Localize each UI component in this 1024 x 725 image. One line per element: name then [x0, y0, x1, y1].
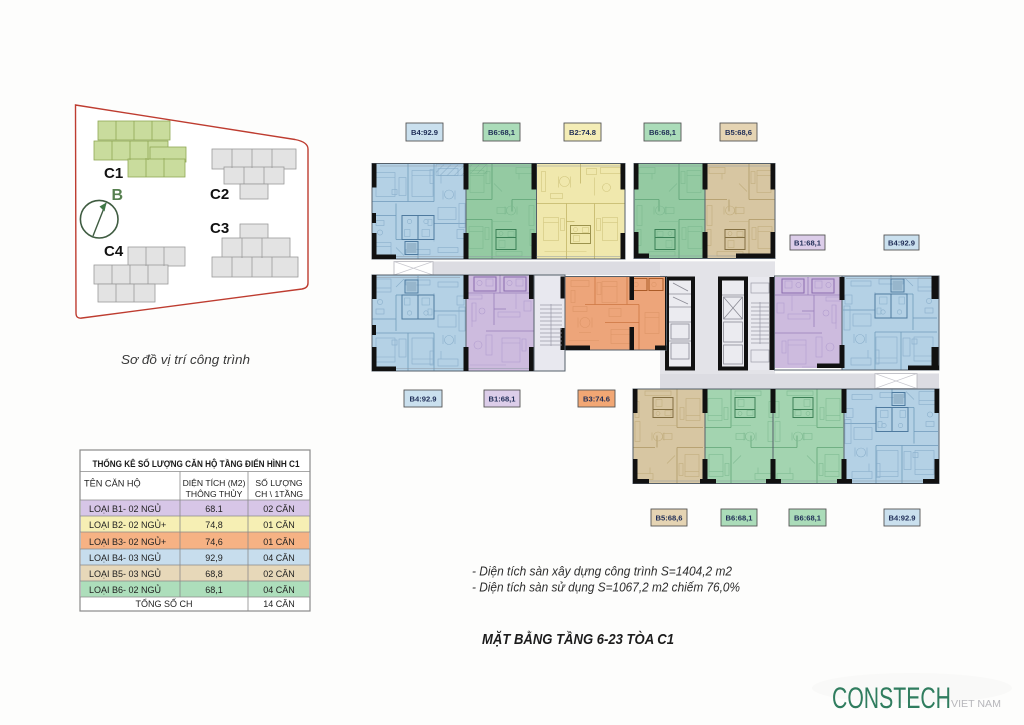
svg-text:TÊN CĂN HỘ: TÊN CĂN HỘ — [84, 478, 141, 489]
svg-text:B1:68,1: B1:68,1 — [794, 239, 822, 248]
svg-text:B6:68,1: B6:68,1 — [488, 128, 516, 137]
svg-text:B4:92.9: B4:92.9 — [411, 128, 438, 137]
svg-text:TỔNG SỐ CH: TỔNG SỐ CH — [135, 598, 192, 609]
svg-text:B4:92.9: B4:92.9 — [888, 239, 915, 248]
svg-text:74,6: 74,6 — [205, 537, 223, 547]
svg-text:74,8: 74,8 — [205, 520, 223, 530]
svg-text:C3: C3 — [210, 220, 229, 237]
svg-text:THÔNG THỦY: THÔNG THỦY — [186, 488, 243, 499]
svg-text:B5:68,6: B5:68,6 — [655, 514, 682, 523]
svg-text:B1:68,1: B1:68,1 — [488, 395, 516, 404]
svg-text:68,1: 68,1 — [205, 585, 223, 595]
svg-text:CH \ 1TẦNG: CH \ 1TẦNG — [255, 489, 304, 499]
svg-text:- Diện tích sàn xây dựng công: - Diện tích sàn xây dựng công trình S=14… — [472, 565, 732, 579]
svg-text:- Diện tích sàn sử dụng S=1067: - Diện tích sàn sử dụng S=1067,2 m2 chiế… — [472, 581, 740, 595]
svg-text:68.1: 68.1 — [205, 504, 223, 514]
svg-text:DIỆN TÍCH (M2): DIỆN TÍCH (M2) — [183, 478, 246, 488]
svg-text:04 CĂN: 04 CĂN — [263, 553, 295, 563]
svg-text:B5:68,6: B5:68,6 — [725, 128, 752, 137]
svg-text:LOẠI B1- 02 NGỦ: LOẠI B1- 02 NGỦ — [89, 503, 161, 514]
svg-text:B4:92.9: B4:92.9 — [409, 395, 436, 404]
svg-text:B6:68,1: B6:68,1 — [649, 128, 677, 137]
svg-text:LOẠI B2- 02 NGỦ+: LOẠI B2- 02 NGỦ+ — [89, 519, 166, 530]
svg-text:02 CĂN: 02 CĂN — [263, 569, 295, 579]
svg-text:C2: C2 — [210, 186, 229, 203]
svg-text:B2:74.8: B2:74.8 — [569, 128, 596, 137]
svg-text:Sơ đồ vị trí công trình: Sơ đồ vị trí công trình — [121, 352, 250, 367]
svg-text:B4:92.9: B4:92.9 — [888, 514, 915, 523]
svg-text:LOẠI B5- 03 NGỦ: LOẠI B5- 03 NGỦ — [89, 568, 161, 579]
svg-text:14 CĂN: 14 CĂN — [263, 599, 295, 609]
svg-text:VIET NAM: VIET NAM — [951, 698, 1001, 710]
svg-text:LOẠI B3- 02 NGỦ+: LOẠI B3- 02 NGỦ+ — [89, 536, 166, 547]
svg-text:MẶT BẰNG TẦNG 6-23 TÒA C1: MẶT BẰNG TẦNG 6-23 TÒA C1 — [482, 630, 674, 648]
svg-text:02 CĂN: 02 CĂN — [263, 504, 295, 514]
svg-text:C1: C1 — [104, 165, 123, 182]
svg-text:68,8: 68,8 — [205, 569, 223, 579]
svg-text:01 CĂN: 01 CĂN — [263, 537, 295, 547]
svg-text:B6:68,1: B6:68,1 — [725, 514, 753, 523]
svg-text:THỐNG KÊ SỐ LƯỢNG CĂN HỘ TẦNG: THỐNG KÊ SỐ LƯỢNG CĂN HỘ TẦNG ĐIỂN HÌNH … — [93, 458, 301, 470]
svg-text:LOẠI B6- 02 NGỦ: LOẠI B6- 02 NGỦ — [89, 584, 161, 595]
svg-text:01 CĂN: 01 CĂN — [263, 520, 295, 530]
svg-text:92,9: 92,9 — [205, 553, 223, 563]
svg-text:B6:68,1: B6:68,1 — [794, 514, 822, 523]
svg-text:C4: C4 — [104, 243, 124, 260]
svg-text:04 CĂN: 04 CĂN — [263, 585, 295, 595]
svg-text:SỐ LƯỢNG: SỐ LƯỢNG — [255, 477, 302, 488]
svg-text:B: B — [112, 187, 124, 204]
svg-text:CONSTECH: CONSTECH — [832, 682, 951, 715]
svg-text:B3:74.6: B3:74.6 — [583, 395, 610, 404]
svg-text:LOẠI B4- 03 NGỦ: LOẠI B4- 03 NGỦ — [89, 552, 161, 563]
